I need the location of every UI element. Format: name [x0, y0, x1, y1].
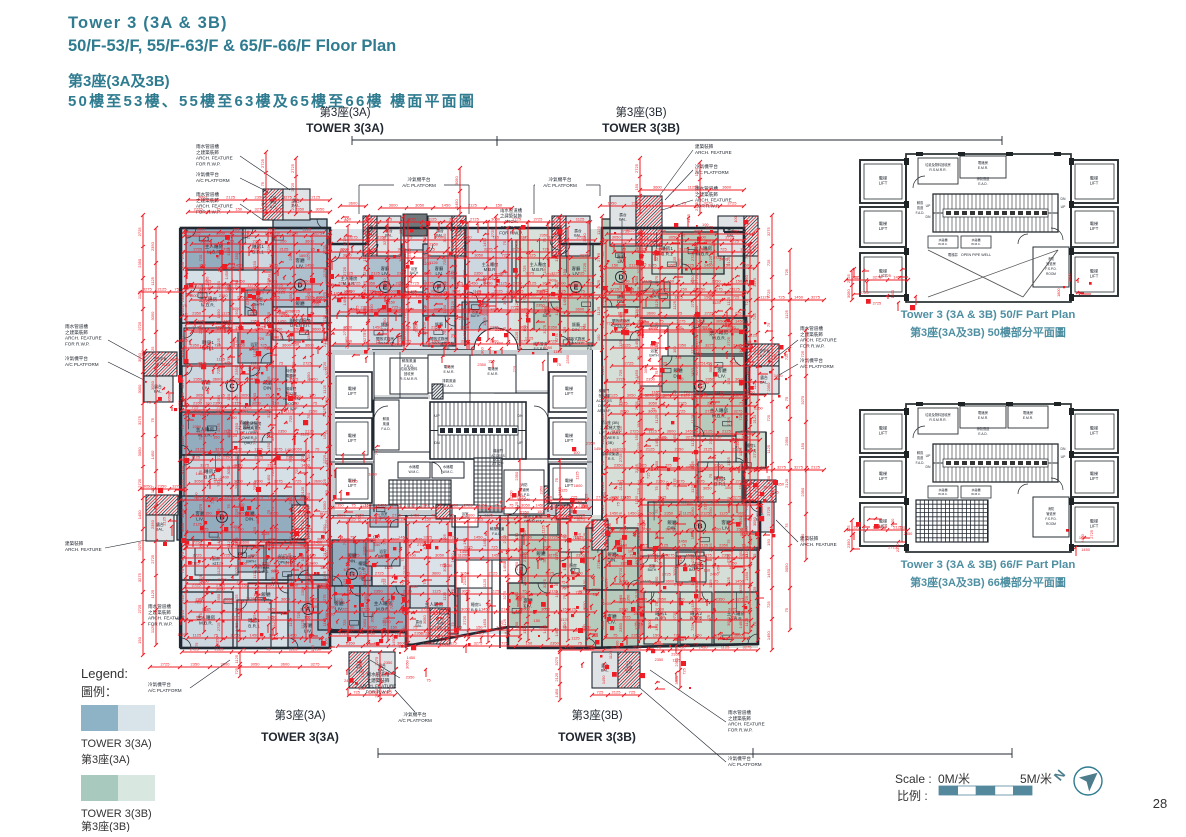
svg-text:3050: 3050: [252, 392, 257, 402]
svg-text:1125: 1125: [286, 494, 295, 499]
svg-text:1450: 1450: [491, 552, 501, 557]
svg-text:2725: 2725: [344, 289, 353, 294]
svg-text:725: 725: [690, 623, 695, 630]
svg-text:1450: 1450: [288, 373, 293, 383]
svg-text:2350: 2350: [664, 510, 674, 515]
svg-text:3275: 3275: [676, 478, 686, 483]
svg-text:150: 150: [266, 442, 271, 449]
svg-text:725: 725: [357, 630, 364, 635]
svg-text:75: 75: [201, 530, 205, 535]
svg-text:725: 725: [587, 280, 594, 285]
svg-text:150: 150: [593, 592, 600, 597]
svg-text:2125: 2125: [233, 537, 242, 542]
svg-text:3050: 3050: [435, 552, 445, 557]
svg-text:ROOM: ROOM: [1046, 272, 1056, 276]
svg-text:3600: 3600: [198, 194, 208, 199]
svg-text:150: 150: [226, 393, 231, 400]
svg-text:2725: 2725: [182, 228, 187, 237]
svg-text:1125: 1125: [571, 636, 579, 641]
svg-text:2125: 2125: [714, 389, 724, 394]
svg-text:3600: 3600: [422, 252, 432, 257]
svg-text:1800: 1800: [659, 435, 668, 440]
svg-text:75: 75: [600, 460, 605, 465]
svg-text:3050: 3050: [150, 380, 155, 390]
svg-text:1450: 1450: [285, 447, 294, 452]
svg-text:150: 150: [324, 489, 329, 496]
svg-text:2725: 2725: [512, 216, 522, 221]
svg-text:F.A.D.: F.A.D.: [381, 427, 390, 431]
svg-text:1125: 1125: [179, 337, 187, 342]
svg-text:1125: 1125: [398, 306, 403, 315]
svg-text:F.S.P.D.: F.S.P.D.: [1045, 267, 1056, 271]
svg-text:第3座(3A及3B) 66樓部分平面圖: 第3座(3A及3B) 66樓部分平面圖: [910, 575, 1066, 589]
svg-text:3050: 3050: [784, 563, 789, 573]
svg-text:2725: 2725: [150, 554, 155, 564]
svg-text:150: 150: [596, 334, 601, 341]
svg-text:1125: 1125: [193, 632, 202, 637]
svg-text:75: 75: [706, 615, 711, 619]
svg-text:2725: 2725: [324, 580, 329, 590]
svg-text:2725: 2725: [726, 336, 731, 346]
svg-text:100: 100: [356, 515, 361, 522]
svg-text:75: 75: [678, 310, 683, 315]
svg-text:3275: 3275: [351, 552, 361, 557]
svg-text:第3座(3A及3B) 50樓部分平面圖: 第3座(3A及3B) 50樓部分平面圖: [910, 325, 1066, 339]
svg-text:2350: 2350: [216, 394, 221, 404]
svg-text:3275: 3275: [449, 216, 459, 221]
svg-text:2725: 2725: [596, 560, 601, 569]
svg-text:LIFT: LIFT: [1090, 226, 1099, 231]
svg-text:75: 75: [562, 594, 567, 599]
svg-text:1800: 1800: [494, 341, 503, 346]
svg-text:725: 725: [618, 425, 623, 432]
svg-text:露台: 露台: [760, 375, 768, 380]
svg-text:1450: 1450: [794, 294, 804, 299]
svg-text:75: 75: [505, 512, 510, 517]
svg-text:100: 100: [678, 510, 683, 517]
svg-text:1125: 1125: [672, 658, 680, 663]
svg-text:1450: 1450: [694, 550, 699, 560]
svg-text:1125: 1125: [498, 280, 507, 285]
svg-text:2125: 2125: [574, 515, 583, 520]
svg-text:3050: 3050: [627, 392, 637, 397]
svg-text:3600: 3600: [575, 306, 585, 311]
svg-text:2350: 2350: [565, 354, 570, 363]
svg-text:725: 725: [766, 414, 771, 421]
svg-text:3050: 3050: [624, 667, 633, 672]
svg-text:3050: 3050: [442, 233, 447, 243]
svg-text:2125: 2125: [514, 300, 519, 310]
svg-text:2125: 2125: [638, 589, 647, 594]
svg-text:725: 725: [374, 449, 379, 456]
svg-text:LIFT: LIFT: [879, 431, 888, 436]
svg-text:1450: 1450: [266, 474, 271, 484]
svg-text:1125: 1125: [608, 651, 613, 659]
svg-text:1125: 1125: [150, 589, 155, 598]
svg-text:75: 75: [752, 245, 757, 250]
svg-text:1125: 1125: [252, 569, 257, 578]
svg-text:2725: 2725: [752, 448, 757, 458]
svg-text:電錶房: 電錶房: [1023, 410, 1034, 415]
svg-text:1125: 1125: [654, 414, 659, 423]
svg-text:1125: 1125: [216, 337, 221, 346]
svg-text:3050: 3050: [582, 232, 587, 242]
svg-text:1800: 1800: [734, 436, 743, 441]
svg-text:725: 725: [475, 289, 482, 294]
svg-text:75: 75: [218, 268, 222, 273]
svg-text:75: 75: [194, 643, 199, 647]
svg-text:1125: 1125: [744, 548, 749, 557]
svg-text:3275: 3275: [811, 294, 821, 299]
svg-text:3050: 3050: [137, 447, 142, 457]
svg-text:75: 75: [198, 612, 203, 617]
svg-text:3600: 3600: [389, 202, 399, 207]
svg-text:3050: 3050: [612, 234, 622, 239]
svg-text:2350: 2350: [300, 586, 305, 596]
svg-text:2725: 2725: [475, 630, 485, 635]
svg-text:LIV.: LIV.: [381, 271, 388, 276]
svg-text:725: 725: [684, 389, 691, 394]
svg-text:TOWER 3(3B): TOWER 3(3B): [602, 121, 680, 135]
svg-text:2400: 2400: [559, 534, 568, 539]
svg-text:2725: 2725: [137, 478, 142, 488]
svg-text:75: 75: [784, 523, 789, 528]
svg-text:1125: 1125: [247, 282, 256, 287]
svg-text:1450: 1450: [743, 478, 748, 487]
svg-text:1450: 1450: [305, 262, 315, 267]
svg-text:3600: 3600: [466, 512, 476, 517]
svg-text:725: 725: [362, 280, 367, 287]
svg-text:725: 725: [709, 242, 716, 247]
svg-text:2725: 2725: [596, 279, 601, 289]
svg-text:2125: 2125: [442, 620, 447, 630]
svg-text:1125: 1125: [622, 494, 631, 499]
svg-text:1125: 1125: [637, 249, 645, 254]
svg-text:2350: 2350: [255, 194, 265, 199]
svg-text:725: 725: [193, 539, 200, 544]
svg-text:3600: 3600: [309, 560, 319, 565]
svg-text:725: 725: [846, 525, 851, 532]
svg-text:75: 75: [174, 286, 179, 291]
svg-text:1125: 1125: [362, 568, 367, 576]
svg-text:75: 75: [739, 400, 744, 405]
svg-text:2350: 2350: [626, 594, 631, 603]
svg-text:725: 725: [370, 252, 377, 257]
svg-text:2125: 2125: [612, 689, 622, 694]
svg-text:2725: 2725: [303, 360, 313, 365]
svg-text:150: 150: [582, 579, 587, 586]
svg-text:1450: 1450: [366, 630, 376, 635]
svg-text:1450: 1450: [260, 200, 265, 210]
svg-text:UP: UP: [1061, 205, 1066, 209]
svg-text:2350: 2350: [800, 487, 805, 497]
svg-text:3050: 3050: [454, 175, 459, 185]
svg-text:3050: 3050: [672, 566, 677, 576]
svg-text:3275: 3275: [766, 226, 771, 236]
svg-text:2725: 2725: [161, 661, 171, 666]
svg-text:2725: 2725: [654, 344, 659, 354]
svg-text:75: 75: [426, 678, 430, 683]
svg-text:3275: 3275: [200, 462, 210, 467]
svg-text:725: 725: [606, 320, 613, 325]
svg-text:FOR R.W.P.: FOR R.W.P.: [728, 727, 753, 732]
svg-text:1450: 1450: [288, 632, 298, 637]
svg-text:3050: 3050: [231, 632, 241, 637]
svg-text:75: 75: [654, 486, 659, 491]
svg-text:平台: 平台: [356, 665, 363, 670]
svg-text:UP: UP: [517, 441, 523, 445]
svg-text:150: 150: [137, 636, 142, 643]
svg-text:3275: 3275: [672, 478, 677, 488]
svg-text:2350: 2350: [232, 464, 241, 469]
svg-text:2125: 2125: [747, 371, 752, 380]
svg-text:725: 725: [618, 369, 623, 376]
svg-text:3050: 3050: [306, 492, 311, 502]
svg-text:3600: 3600: [701, 324, 711, 329]
svg-text:150: 150: [672, 346, 677, 353]
svg-text:75: 75: [504, 630, 509, 635]
svg-text:1800: 1800: [1067, 273, 1072, 282]
svg-text:1125: 1125: [150, 346, 155, 355]
svg-text:2350: 2350: [150, 241, 155, 251]
svg-text:2400: 2400: [291, 361, 296, 370]
svg-text:3275: 3275: [734, 408, 744, 413]
svg-text:E.M.R.: E.M.R.: [978, 166, 988, 170]
svg-text:75: 75: [180, 568, 185, 573]
svg-text:BAL.: BAL.: [601, 669, 609, 673]
svg-text:3050: 3050: [474, 252, 484, 257]
svg-text:3600: 3600: [558, 512, 568, 517]
svg-text:3050: 3050: [150, 311, 155, 321]
svg-text:2725: 2725: [306, 291, 311, 301]
svg-text:150: 150: [554, 590, 559, 597]
svg-text:1125: 1125: [749, 333, 757, 338]
svg-text:P.D.: P.D.: [587, 347, 594, 351]
svg-text:725: 725: [675, 355, 682, 360]
svg-text:水錶櫃: 水錶櫃: [409, 464, 420, 469]
svg-text:2725: 2725: [728, 200, 738, 205]
svg-text:E.A.D.: E.A.D.: [444, 384, 454, 388]
svg-text:2725: 2725: [873, 301, 882, 306]
svg-text:75: 75: [727, 321, 731, 326]
svg-text:100: 100: [733, 215, 738, 222]
svg-text:1125: 1125: [300, 619, 305, 628]
svg-text:第3座(3B): 第3座(3B): [81, 819, 130, 832]
svg-text:3600: 3600: [647, 310, 657, 315]
svg-text:1450: 1450: [441, 289, 451, 294]
svg-text:1125: 1125: [575, 471, 580, 479]
svg-text:E.M.R.: E.M.R.: [444, 370, 455, 374]
svg-text:100: 100: [310, 644, 315, 651]
svg-text:2350: 2350: [216, 230, 226, 235]
svg-text:1450: 1450: [442, 202, 452, 207]
svg-text:2725: 2725: [281, 313, 290, 318]
svg-text:725: 725: [490, 291, 495, 298]
svg-text:150: 150: [772, 353, 777, 360]
svg-text:3050: 3050: [232, 306, 241, 311]
svg-text:M.B.R.: M.B.R.: [199, 620, 213, 625]
svg-text:3275: 3275: [143, 286, 153, 291]
svg-text:2350: 2350: [646, 376, 656, 381]
svg-text:2725: 2725: [221, 552, 231, 557]
svg-text:2725: 2725: [207, 284, 212, 293]
svg-text:2725: 2725: [297, 278, 302, 287]
svg-text:2725: 2725: [137, 227, 142, 237]
svg-text:1125: 1125: [511, 288, 519, 293]
svg-text:3275: 3275: [633, 644, 643, 649]
svg-text:1125: 1125: [183, 313, 188, 321]
svg-text:TOWER 3(3B): TOWER 3(3B): [558, 730, 636, 744]
svg-text:2125: 2125: [703, 501, 708, 510]
svg-text:F.A.D.: F.A.D.: [916, 211, 925, 215]
svg-text:消防: 消防: [520, 482, 528, 487]
svg-text:75: 75: [343, 218, 347, 223]
svg-text:75: 75: [554, 477, 559, 482]
svg-text:Tower 3 (3A & 3B) 50/F Part Pl: Tower 3 (3A & 3B) 50/F Part Plan: [901, 309, 1076, 321]
svg-text:LIFT: LIFT: [565, 391, 574, 396]
svg-text:2400: 2400: [602, 601, 611, 606]
svg-text:2125: 2125: [468, 202, 478, 207]
svg-text:2350: 2350: [219, 293, 228, 298]
svg-text:2400: 2400: [890, 518, 895, 527]
svg-text:75: 75: [279, 360, 284, 365]
svg-text:1450: 1450: [774, 373, 783, 378]
svg-text:100: 100: [230, 415, 237, 420]
svg-text:75: 75: [499, 500, 504, 504]
svg-text:2400: 2400: [710, 572, 719, 577]
svg-text:ARCH. FEATURE: ARCH. FEATURE: [196, 156, 233, 161]
svg-text:3600: 3600: [305, 238, 315, 243]
svg-text:725: 725: [766, 259, 771, 266]
svg-text:2125: 2125: [158, 286, 168, 291]
svg-text:1450: 1450: [744, 320, 749, 330]
svg-text:2725: 2725: [274, 282, 284, 287]
svg-text:2725: 2725: [320, 510, 329, 515]
svg-text:2350: 2350: [550, 640, 560, 645]
svg-text:2725: 2725: [290, 201, 295, 211]
svg-text:3050: 3050: [226, 465, 231, 475]
svg-text:1125: 1125: [432, 588, 441, 593]
svg-text:2725: 2725: [290, 163, 295, 173]
svg-text:3275: 3275: [266, 408, 271, 418]
svg-text:2125: 2125: [514, 501, 519, 511]
svg-text:1450: 1450: [216, 309, 221, 319]
svg-text:3050: 3050: [846, 288, 851, 298]
svg-text:R.S.M.R.R.: R.S.M.R.R.: [400, 377, 418, 381]
svg-text:垃圾及物料回收房: 垃圾及物料回收房: [925, 162, 951, 167]
svg-text:1800: 1800: [227, 322, 232, 331]
svg-text:2350: 2350: [514, 471, 519, 481]
svg-text:2350: 2350: [621, 278, 631, 283]
svg-text:風道: 風道: [383, 421, 390, 426]
svg-text:75: 75: [726, 539, 731, 544]
svg-text:W.M.C.: W.M.C.: [971, 492, 981, 496]
svg-text:1125: 1125: [528, 280, 537, 285]
svg-text:2350: 2350: [474, 270, 484, 275]
svg-text:725: 725: [800, 350, 805, 357]
svg-text:1125: 1125: [634, 495, 639, 504]
svg-text:75: 75: [315, 446, 320, 451]
svg-text:75: 75: [748, 494, 752, 499]
svg-text:TOWER 3(3A): TOWER 3(3A): [81, 738, 152, 750]
svg-text:150: 150: [740, 246, 747, 251]
svg-text:75: 75: [313, 400, 318, 405]
svg-text:3275: 3275: [137, 572, 142, 582]
svg-text:1125: 1125: [726, 296, 731, 305]
svg-text:150: 150: [235, 206, 242, 211]
svg-text:1125: 1125: [708, 579, 713, 588]
svg-text:75: 75: [347, 588, 352, 593]
svg-text:2725: 2725: [533, 216, 543, 221]
svg-text:2725: 2725: [193, 552, 203, 557]
svg-text:100: 100: [205, 400, 212, 405]
svg-text:1125: 1125: [216, 565, 221, 574]
svg-text:2125: 2125: [626, 228, 635, 233]
svg-text:75: 75: [220, 392, 225, 397]
svg-text:100: 100: [247, 364, 252, 371]
svg-text:2350: 2350: [326, 611, 335, 616]
svg-text:1450: 1450: [360, 668, 365, 677]
svg-text:LIV.: LIV.: [435, 271, 442, 276]
svg-text:150: 150: [745, 339, 752, 344]
svg-text:(3B): (3B): [606, 441, 614, 445]
svg-text:鮮風: 鮮風: [383, 416, 390, 421]
svg-text:3600: 3600: [349, 200, 359, 205]
svg-text:2350: 2350: [234, 479, 239, 489]
svg-text:3275: 3275: [425, 280, 435, 285]
svg-text:150: 150: [252, 260, 257, 267]
svg-text:2725: 2725: [439, 637, 448, 642]
svg-text:1800: 1800: [615, 640, 620, 649]
svg-text:3050: 3050: [216, 587, 225, 592]
svg-text:2125: 2125: [193, 521, 202, 526]
svg-text:3275: 3275: [198, 503, 203, 513]
svg-text:3275: 3275: [705, 342, 715, 347]
svg-text:2350: 2350: [895, 543, 900, 552]
svg-text:3050: 3050: [137, 384, 142, 394]
svg-text:75: 75: [147, 400, 151, 405]
svg-text:3275: 3275: [382, 236, 387, 246]
svg-text:1125: 1125: [484, 512, 493, 517]
svg-text:725: 725: [766, 600, 771, 607]
svg-text:2725: 2725: [342, 326, 347, 336]
svg-text:3275: 3275: [215, 446, 225, 451]
svg-text:風道: 風道: [917, 455, 924, 460]
svg-text:3050: 3050: [262, 560, 272, 565]
svg-text:1800: 1800: [890, 289, 895, 298]
svg-text:75: 75: [306, 615, 311, 620]
svg-text:2725: 2725: [349, 478, 358, 483]
svg-text:150: 150: [800, 442, 805, 449]
svg-text:2725: 2725: [342, 266, 347, 276]
svg-text:2350: 2350: [725, 553, 730, 562]
svg-text:3600: 3600: [213, 376, 223, 381]
svg-text:3050: 3050: [265, 582, 275, 587]
svg-text:75: 75: [276, 387, 280, 392]
svg-text:3050: 3050: [521, 502, 531, 507]
svg-text:3600: 3600: [221, 661, 231, 666]
svg-text:3275: 3275: [777, 464, 787, 469]
svg-text:TOWER 3(3B): TOWER 3(3B): [81, 808, 152, 820]
svg-text:1125: 1125: [712, 300, 720, 305]
svg-text:A/C PLATFORM: A/C PLATFORM: [543, 183, 577, 188]
svg-text:150: 150: [241, 582, 248, 587]
svg-text:3600: 3600: [737, 510, 747, 515]
svg-text:2725: 2725: [462, 615, 467, 625]
svg-text:1125: 1125: [766, 444, 771, 453]
svg-text:1125: 1125: [719, 510, 728, 515]
svg-text:DN: DN: [517, 414, 523, 418]
